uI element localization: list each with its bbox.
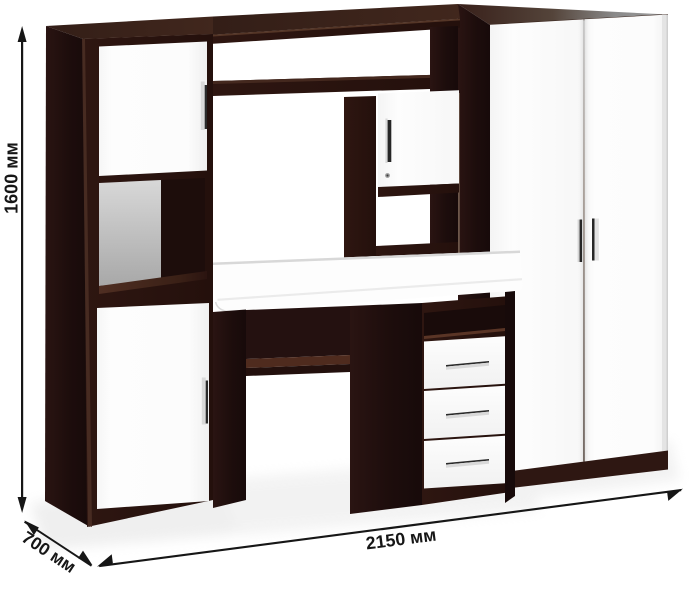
svg-text:1600 мм: 1600 мм	[2, 142, 22, 214]
